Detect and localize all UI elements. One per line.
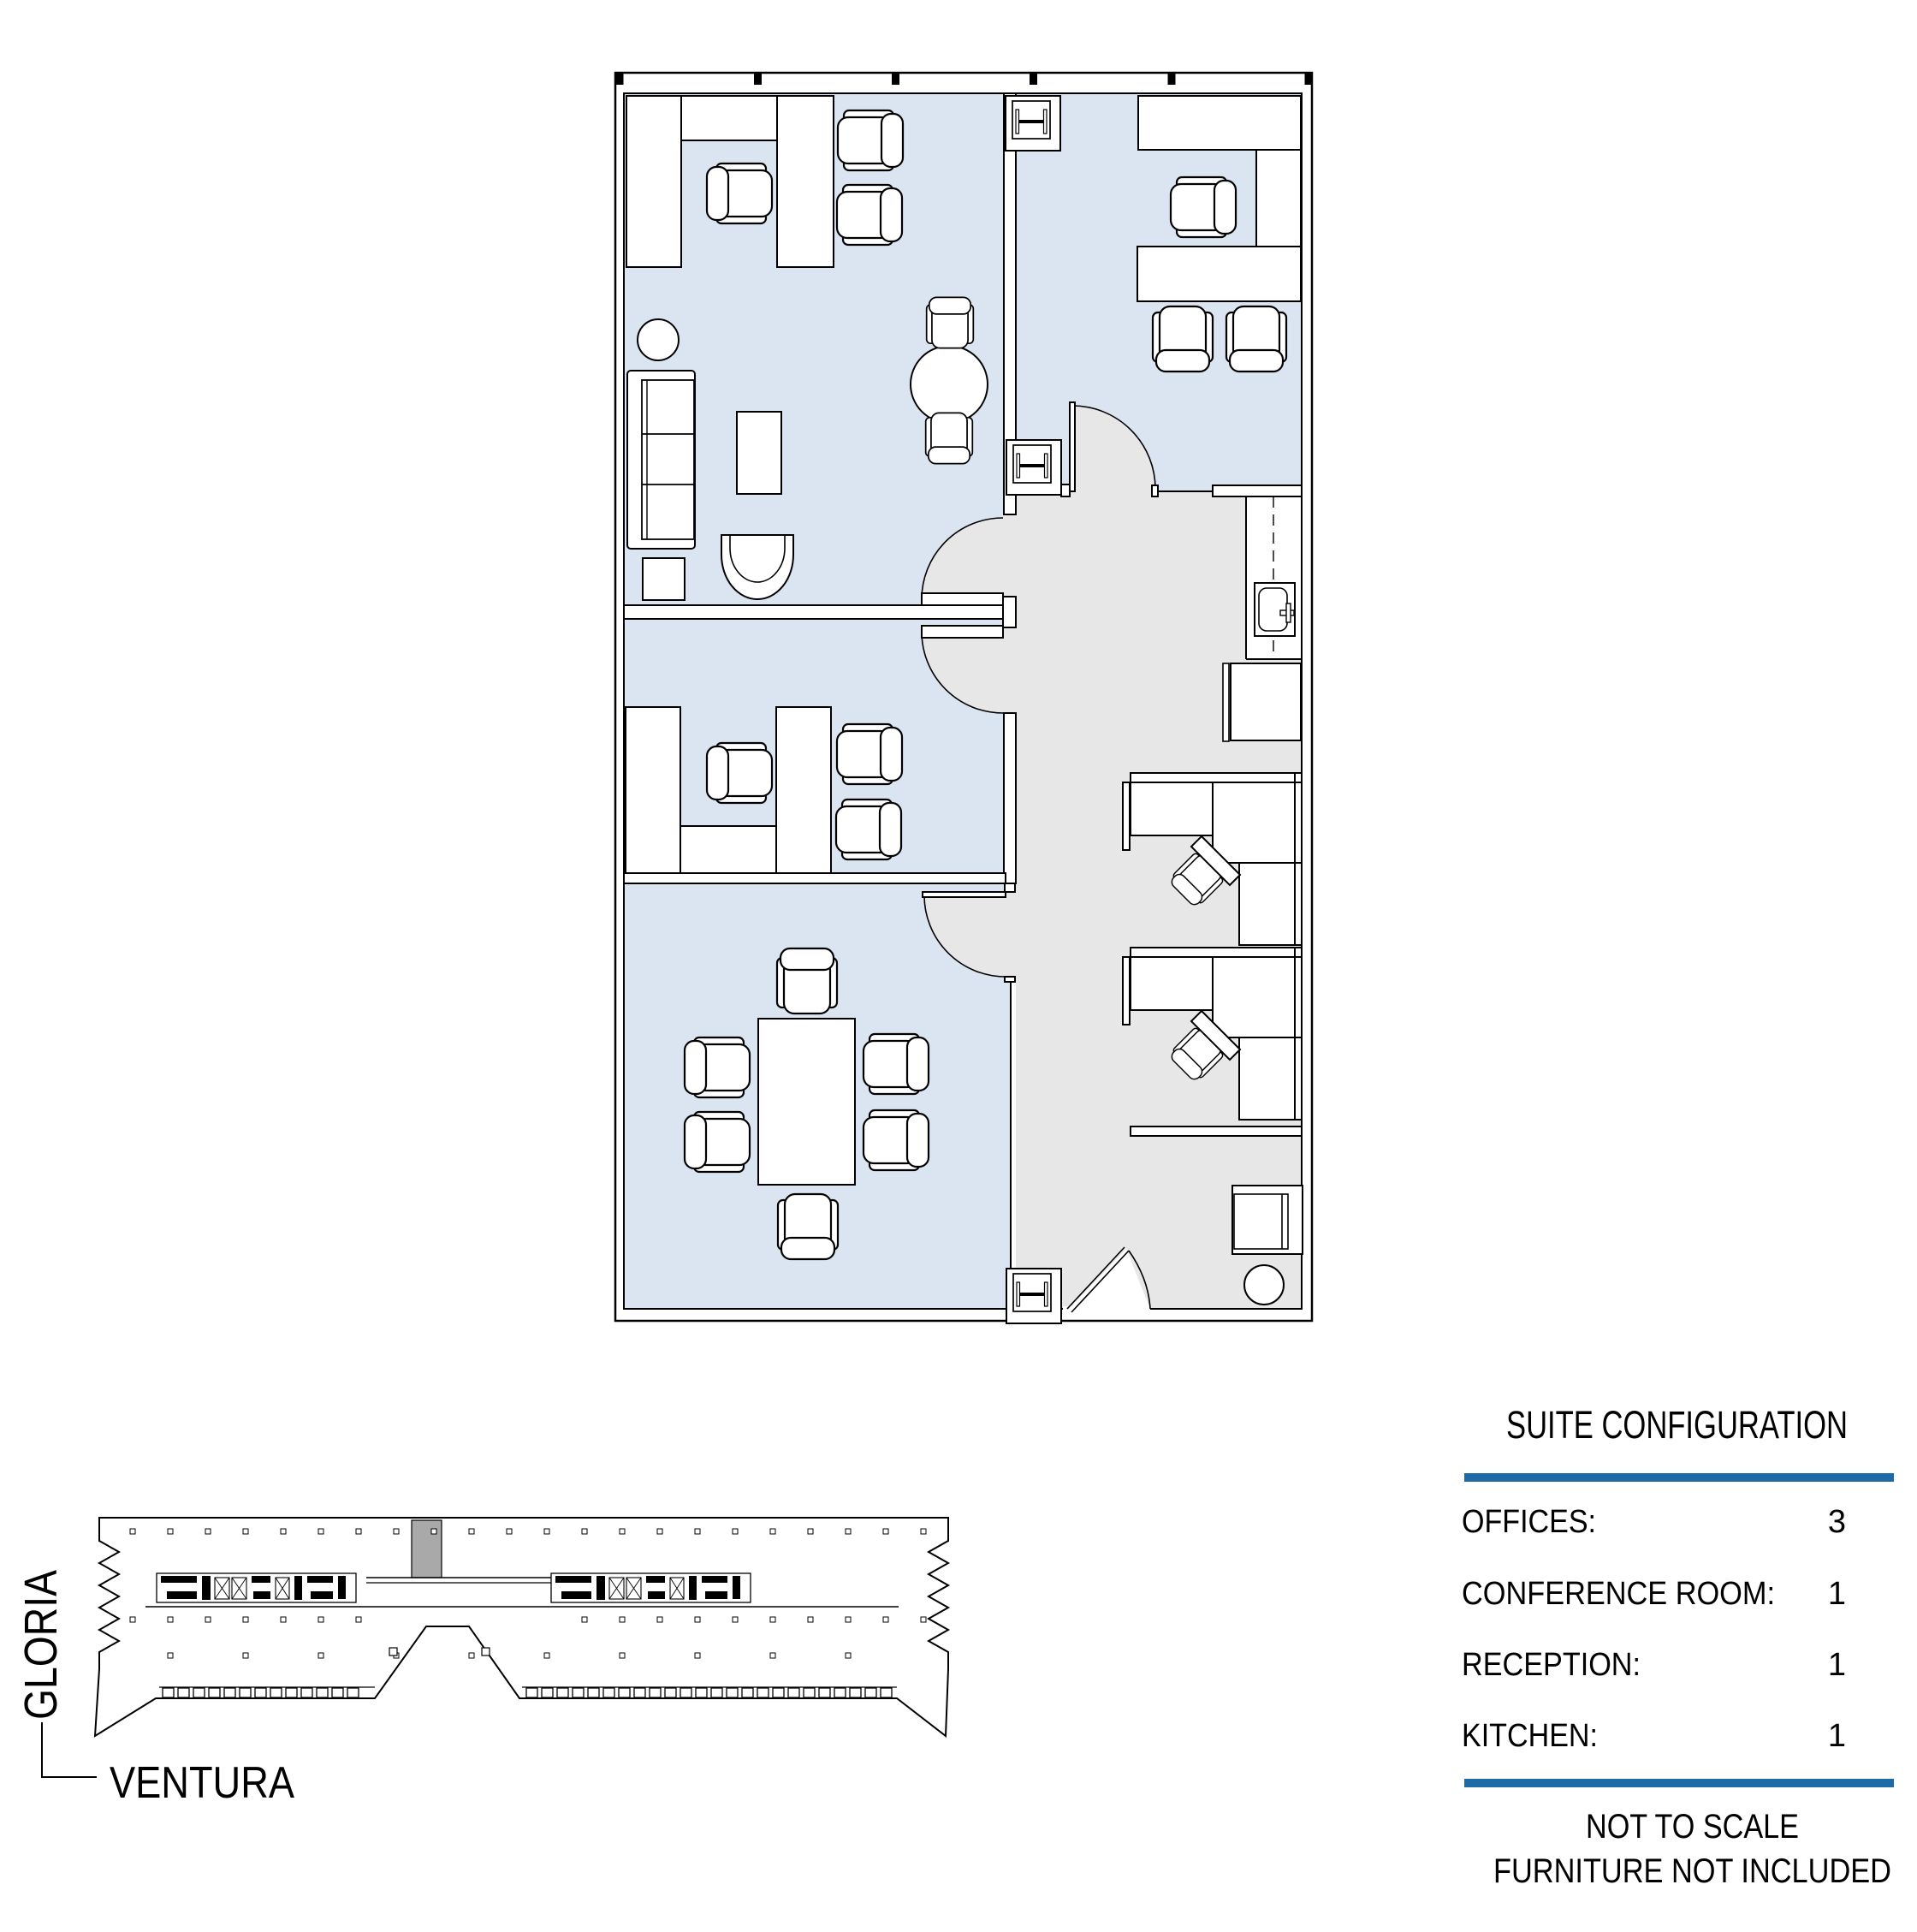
svg-text:3: 3 <box>1828 1504 1846 1540</box>
svg-text:NOT TO SCALE: NOT TO SCALE <box>1586 1808 1799 1846</box>
svg-text:CONFERENCE ROOM:: CONFERENCE ROOM: <box>1462 1576 1775 1612</box>
svg-text:GLORIA: GLORIA <box>15 1570 67 1720</box>
svg-text:SUITE CONFIGURATION: SUITE CONFIGURATION <box>1506 1403 1848 1447</box>
svg-text:RECEPTION:: RECEPTION: <box>1462 1647 1641 1683</box>
svg-text:1: 1 <box>1828 1647 1846 1683</box>
svg-text:1: 1 <box>1828 1576 1846 1612</box>
svg-text:OFFICES:: OFFICES: <box>1462 1504 1596 1540</box>
svg-text:VENTURA: VENTURA <box>110 1758 294 1808</box>
svg-text:KITCHEN:: KITCHEN: <box>1462 1718 1598 1754</box>
svg-text:FURNITURE NOT INCLUDED: FURNITURE NOT INCLUDED <box>1493 1852 1891 1890</box>
svg-text:1: 1 <box>1828 1718 1846 1754</box>
